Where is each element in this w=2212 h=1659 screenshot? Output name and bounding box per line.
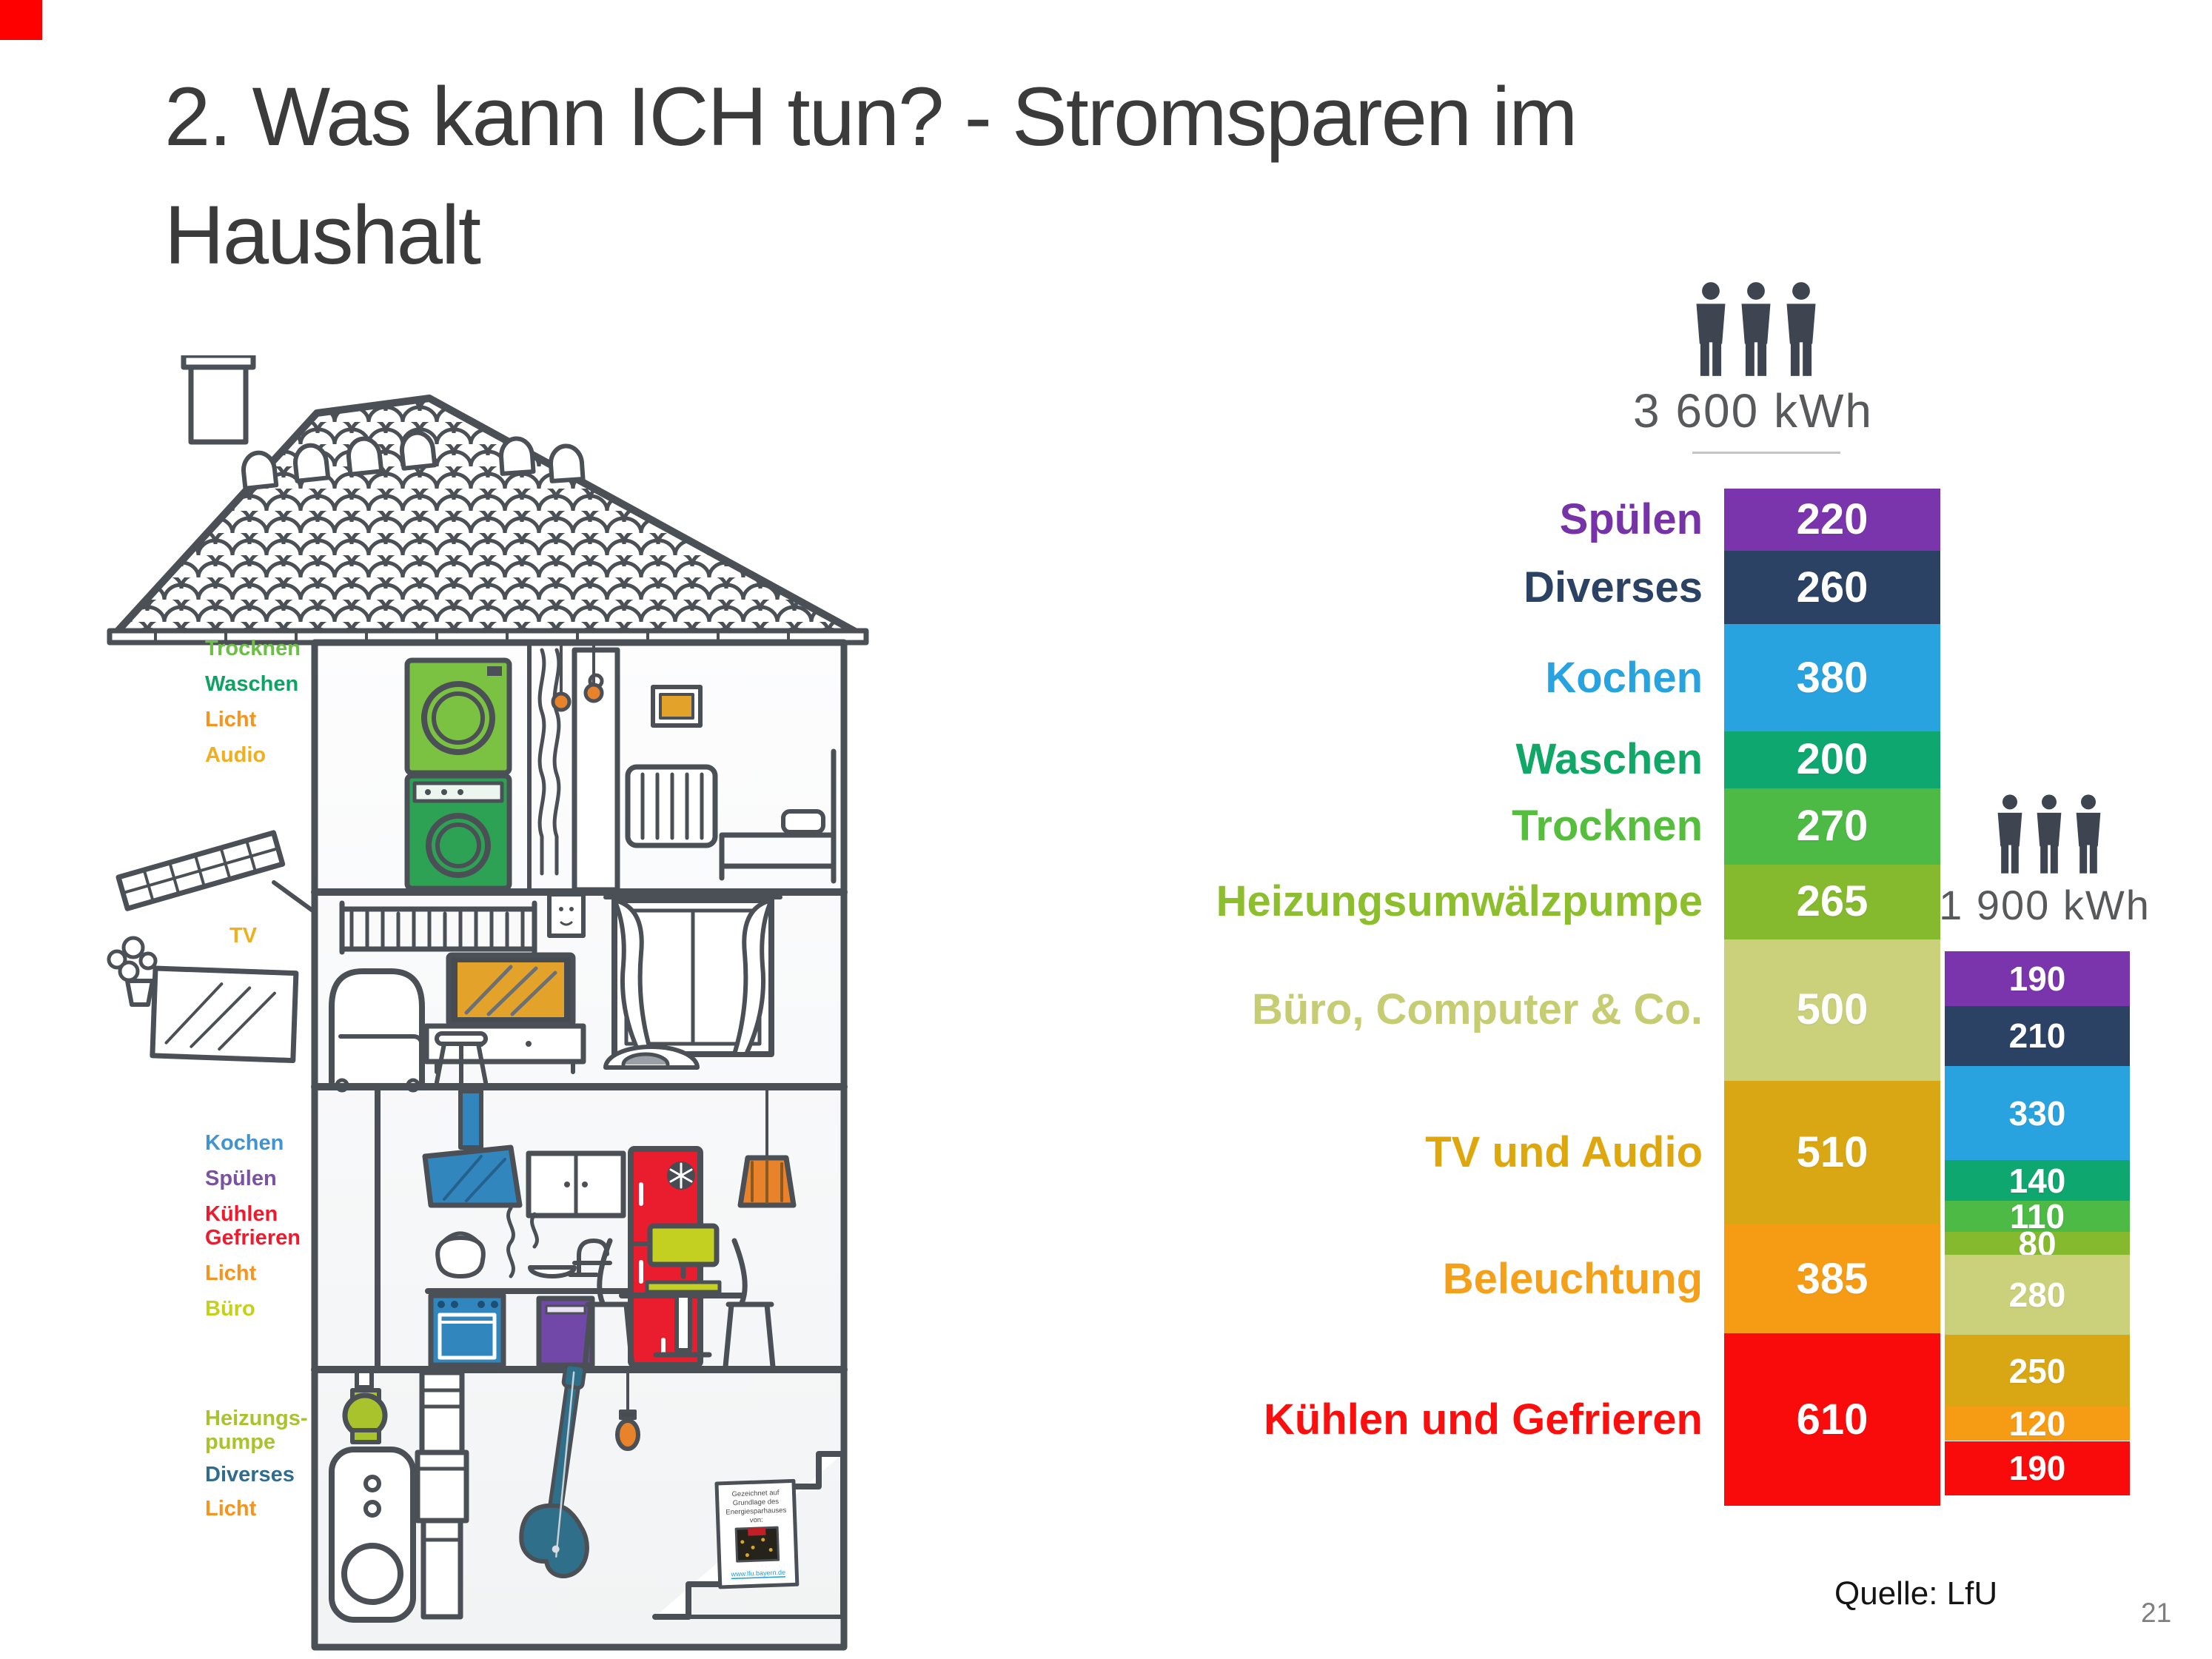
caption-line-2: Grundlage des: [733, 1498, 780, 1507]
bar1-value-9: 610: [1724, 1398, 1940, 1441]
house-label-14: Licht: [205, 1498, 256, 1520]
chart-category-label-9: Kühlen und Gefrieren: [1264, 1398, 1703, 1441]
chimney-pipes: [418, 1373, 466, 1617]
solar-panel: [118, 833, 315, 912]
house-label-11: Heizungs-: [205, 1408, 308, 1430]
bar2-value-0: 190: [1945, 962, 2130, 996]
bar1-value-4: 270: [1724, 805, 1940, 848]
house-label-12: pumpe: [205, 1432, 275, 1453]
wall-panel: [153, 968, 296, 1061]
chart-category-label-0: Spülen: [1560, 498, 1703, 541]
house-label-4: TV: [229, 925, 257, 947]
kwh-underline: [1692, 452, 1840, 454]
bar2-value-8: 120: [1945, 1407, 2130, 1441]
chart-category-label-8: Beleuchtung: [1443, 1258, 1703, 1301]
persons-icons-1900: [1990, 792, 2108, 875]
bar2-value-2: 330: [1945, 1096, 2130, 1130]
bar1-value-2: 380: [1724, 657, 1940, 700]
person-icon: [1995, 794, 2025, 875]
house-label-0: Trocknen: [205, 638, 301, 660]
picture-frame: [549, 894, 583, 936]
bar1-value-1: 260: [1724, 566, 1940, 609]
bar2-value-3: 140: [1945, 1164, 2130, 1198]
person-icon: [2074, 794, 2103, 875]
total-1900-kwh: 1 900 kWh: [1939, 881, 2151, 929]
house-label-1: Waschen: [205, 674, 298, 695]
person-icon: [2034, 794, 2064, 875]
plant: [109, 938, 155, 1005]
total-3600-kwh: 3 600 kWh: [1633, 383, 1873, 438]
bar2-value-6: 280: [1945, 1278, 2130, 1312]
caption-card: Gezeichnet auf Grundlage des Energiespar…: [717, 1481, 797, 1587]
person-icon: [1783, 281, 1819, 378]
chart-category-label-2: Kochen: [1545, 657, 1703, 700]
house-roof: [110, 355, 866, 643]
chart-category-label-1: Diverses: [1524, 566, 1703, 609]
chart-category-label-6: Büro, Computer & Co.: [1252, 988, 1703, 1031]
house-label-5: Kochen: [205, 1133, 284, 1154]
person-icon: [1738, 281, 1774, 378]
kettle: [438, 1238, 483, 1276]
bar1-value-8: 385: [1724, 1258, 1940, 1301]
house-label-2: Licht: [205, 709, 256, 731]
bar1-value-6: 500: [1724, 988, 1940, 1031]
pan: [530, 1267, 574, 1276]
armchair: [332, 971, 422, 1082]
house-label-8: Gefrieren: [205, 1227, 301, 1249]
title-line-1: 2. Was kann ICH tun? - Stromsparen im: [164, 58, 1941, 176]
bar1-value-7: 510: [1724, 1131, 1940, 1174]
bar2-value-7: 250: [1945, 1354, 2130, 1388]
house-label-3: Audio: [205, 745, 266, 766]
chart-category-label-7: TV und Audio: [1425, 1131, 1703, 1174]
house-label-6: Spülen: [205, 1168, 277, 1190]
caption-line-1: Gezeichnet auf: [731, 1489, 780, 1498]
pendant-bulb: [553, 694, 569, 710]
house-label-13: Diverses: [205, 1464, 295, 1486]
bar1-value-0: 220: [1724, 498, 1940, 541]
bar1-value-5: 265: [1724, 880, 1940, 923]
chart-category-label-4: Trocknen: [1512, 805, 1703, 848]
slide-title: 2. Was kann ICH tun? - Stromsparen im Ha…: [164, 58, 1941, 295]
computer-monitor: [650, 1226, 717, 1264]
house-label-9: Licht: [205, 1263, 256, 1284]
page-number: 21: [2141, 1598, 2171, 1629]
persons-icons-3600: [1689, 280, 1823, 378]
chart-category-label-3: Waschen: [1516, 738, 1703, 781]
source-label: Quelle: LfU: [1834, 1575, 1997, 1612]
bar2-value-1: 210: [1945, 1019, 2130, 1053]
title-line-2: Haushalt: [164, 176, 1941, 295]
house-label-10: Büro: [205, 1298, 255, 1320]
coat-of-arms: [736, 1527, 779, 1561]
person-icon: [1693, 281, 1729, 378]
bar1-value-3: 200: [1724, 738, 1940, 781]
slide-accent-corner: [0, 0, 42, 40]
keyboard: [647, 1282, 720, 1292]
house-label-7: Kühlen: [205, 1204, 278, 1225]
caption-line-4: von:: [750, 1516, 763, 1525]
bar2-value-9: 190: [1945, 1451, 2130, 1485]
chart-category-label-5: Heizungsumwälzpumpe: [1216, 880, 1703, 923]
slide: 2. Was kann ICH tun? - Stromsparen im Ha…: [0, 0, 2212, 1659]
